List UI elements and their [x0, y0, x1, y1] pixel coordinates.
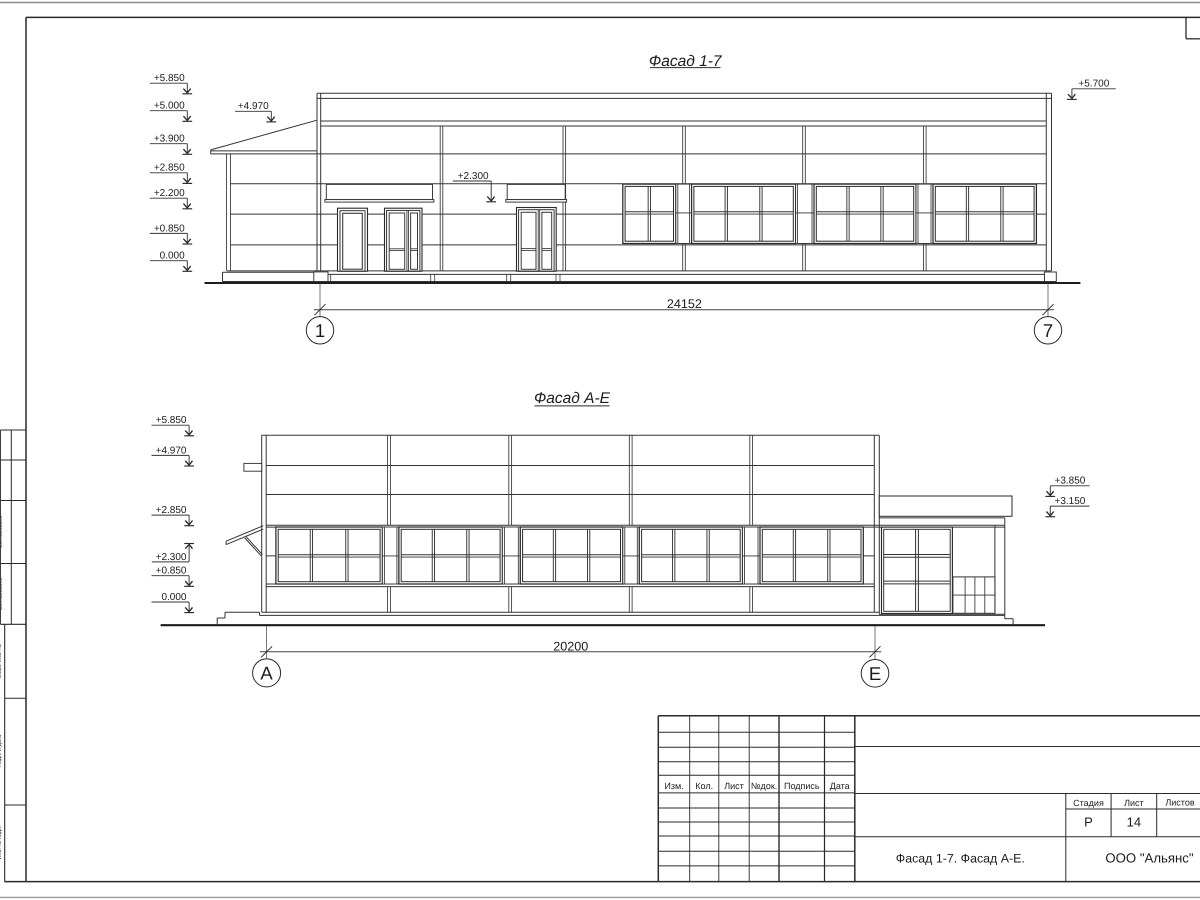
svg-text:Е: Е — [869, 663, 881, 684]
svg-text:+2.850: +2.850 — [154, 163, 185, 174]
svg-text:+2.850: +2.850 — [156, 505, 187, 516]
svg-text:Фасад 1-7. Фасад А-Е.: Фасад 1-7. Фасад А-Е. — [896, 852, 1025, 866]
svg-text:Изм.: Изм. — [664, 781, 683, 791]
svg-text:Стадия: Стадия — [1073, 798, 1104, 808]
svg-text:Подп. и дата: Подп. и дата — [0, 734, 3, 767]
svg-text:+2.200: +2.200 — [154, 188, 185, 199]
svg-text:Согласовано: Согласовано — [0, 577, 4, 610]
svg-text:Лист: Лист — [1124, 798, 1144, 808]
svg-text:+5.000: +5.000 — [154, 101, 185, 112]
svg-text:14: 14 — [1127, 815, 1141, 830]
svg-text:+4.970: +4.970 — [156, 445, 187, 456]
svg-text:+3.850: +3.850 — [1055, 476, 1086, 487]
svg-text:Согласовано: Согласовано — [0, 515, 4, 548]
svg-text:Листов: Листов — [1165, 798, 1194, 808]
svg-text:0.000: 0.000 — [160, 251, 185, 262]
svg-text:24152: 24152 — [667, 297, 702, 311]
svg-text:+2.300: +2.300 — [458, 171, 489, 182]
svg-text:Подпись: Подпись — [784, 781, 820, 791]
svg-text:+4.970: +4.970 — [238, 101, 269, 112]
svg-text:20200: 20200 — [553, 639, 588, 653]
svg-text:Дата: Дата — [830, 781, 850, 791]
svg-text:Инв. № подл.: Инв. № подл. — [0, 825, 3, 860]
svg-text:ООО "Альянс": ООО "Альянс" — [1105, 850, 1193, 865]
svg-text:0.000: 0.000 — [161, 592, 186, 603]
svg-text:Кол.: Кол. — [695, 781, 713, 791]
svg-text:+2.300: +2.300 — [156, 552, 187, 563]
svg-text:А: А — [260, 663, 273, 684]
svg-text:+3.150: +3.150 — [1055, 496, 1086, 507]
svg-text:+5.850: +5.850 — [156, 415, 187, 426]
svg-text:+0.850: +0.850 — [156, 566, 187, 577]
svg-text:№док.: №док. — [751, 781, 777, 791]
svg-text:+3.900: +3.900 — [154, 134, 185, 145]
svg-text:Р: Р — [1084, 815, 1093, 830]
svg-text:1: 1 — [315, 320, 325, 341]
svg-text:Фасад А-Е: Фасад А-Е — [534, 390, 611, 407]
svg-text:+5.850: +5.850 — [154, 73, 185, 84]
svg-text:Лист: Лист — [724, 781, 744, 791]
svg-text:7: 7 — [1043, 320, 1053, 341]
svg-text:Взам. инв. №: Взам. инв. № — [0, 644, 3, 678]
svg-text:+0.850: +0.850 — [154, 223, 185, 234]
svg-text:+5.700: +5.700 — [1078, 79, 1109, 90]
